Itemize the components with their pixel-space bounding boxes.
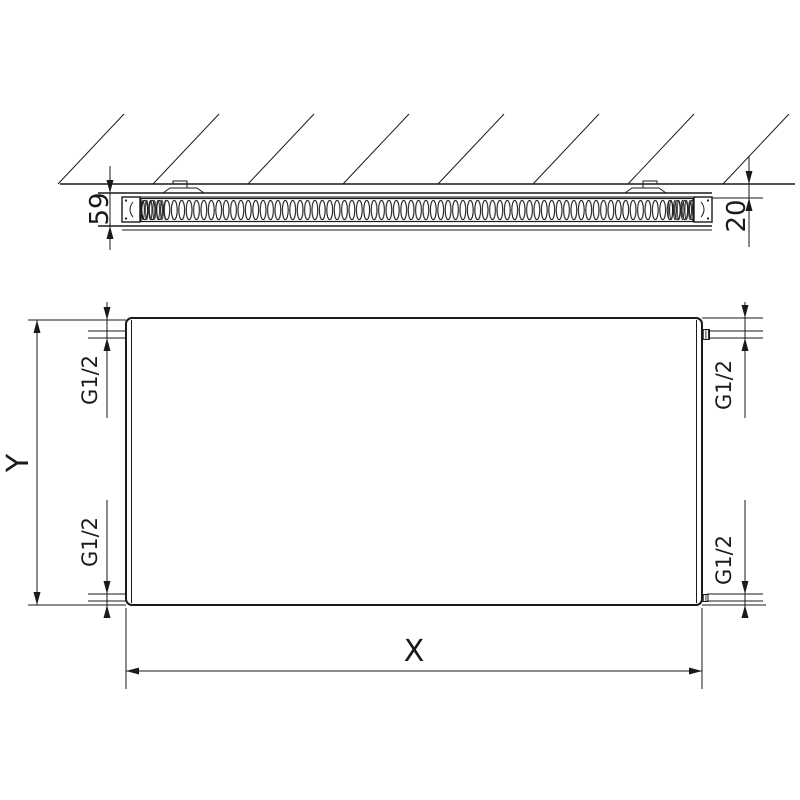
depth-dimension: 59 bbox=[85, 166, 115, 250]
convection-fins-dense-right bbox=[668, 199, 693, 221]
wall-gap-label: 20 bbox=[722, 199, 752, 232]
arrowhead-down bbox=[104, 307, 111, 320]
arrowhead-left bbox=[126, 668, 139, 675]
connection-dimension-top-right: G1/2 bbox=[712, 302, 749, 418]
end-cap-right bbox=[694, 197, 712, 222]
radiator-cross-section bbox=[98, 193, 712, 230]
connection-label-top-right: G1/2 bbox=[712, 360, 736, 410]
arrowhead-up bbox=[104, 605, 111, 618]
mounting-bracket-right bbox=[625, 181, 666, 193]
convection-fins bbox=[141, 199, 693, 222]
thread-stub-top-right bbox=[702, 330, 710, 340]
arrowhead-up bbox=[742, 338, 749, 351]
connection-dimension-top-left: G1/2 bbox=[78, 302, 111, 418]
arrowhead-down bbox=[34, 592, 41, 605]
connection-label-bottom-right: G1/2 bbox=[712, 535, 736, 585]
wall-gap-dimension: 20 bbox=[712, 156, 763, 247]
height-dimension: Y bbox=[1, 320, 41, 605]
arrowhead-right bbox=[689, 668, 702, 675]
connection-label-top-left: G1/2 bbox=[78, 355, 102, 405]
mounting-bracket-left bbox=[163, 181, 204, 193]
arrowhead-down bbox=[107, 180, 114, 193]
arrowhead-down bbox=[742, 581, 749, 594]
width-dimension: X bbox=[126, 634, 702, 675]
arrowhead-down bbox=[746, 171, 753, 184]
end-cap-left bbox=[122, 197, 140, 222]
connection-dimension-bottom-left: G1/2 bbox=[78, 500, 111, 618]
height-label: Y bbox=[1, 453, 36, 473]
radiator-technical-drawing: 59 20 bbox=[0, 0, 800, 800]
arrowhead-up bbox=[742, 605, 749, 618]
width-label: X bbox=[404, 634, 425, 669]
drawing-canvas: 59 20 bbox=[0, 0, 800, 800]
wall-hatch bbox=[58, 114, 789, 184]
radiator-front-panel bbox=[126, 318, 702, 605]
convection-fins-dense-left bbox=[141, 199, 166, 221]
arrowhead-up bbox=[104, 338, 111, 351]
front-view: Y X G1/2 G1/2 G1/2 bbox=[1, 302, 766, 689]
arrowhead-down bbox=[104, 581, 111, 594]
arrowhead-down bbox=[742, 305, 749, 318]
connection-dimension-bottom-right: G1/2 bbox=[712, 500, 749, 618]
connection-label-bottom-left: G1/2 bbox=[78, 517, 102, 567]
thread-stub-bottom-right bbox=[702, 595, 708, 602]
depth-label: 59 bbox=[85, 192, 115, 225]
arrowhead-up bbox=[107, 226, 114, 239]
arrowhead-up bbox=[34, 320, 41, 333]
cross-section-view: 59 20 bbox=[58, 114, 795, 250]
